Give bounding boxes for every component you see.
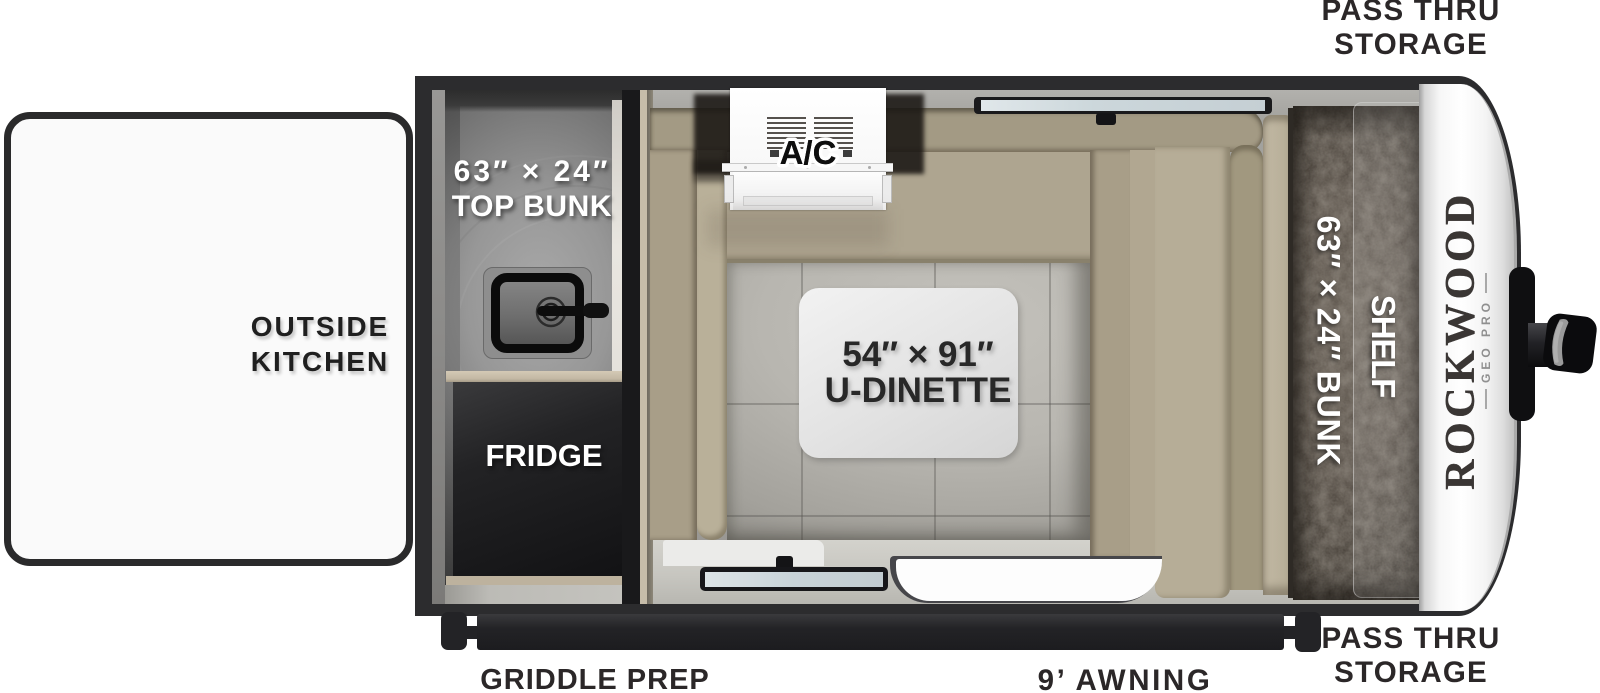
- svg-text:A/C: A/C: [780, 134, 837, 171]
